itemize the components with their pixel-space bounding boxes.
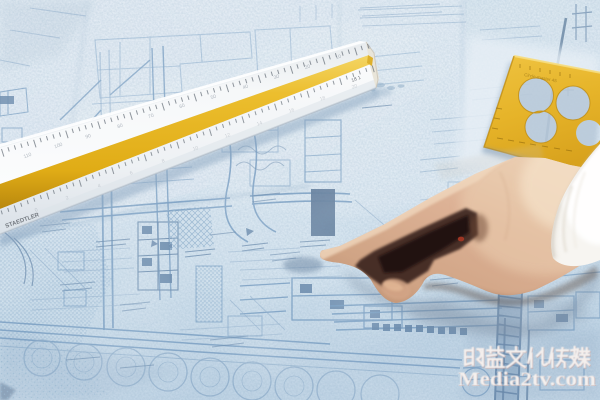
svg-text:Media2tv.com: Media2tv.com	[458, 369, 596, 391]
